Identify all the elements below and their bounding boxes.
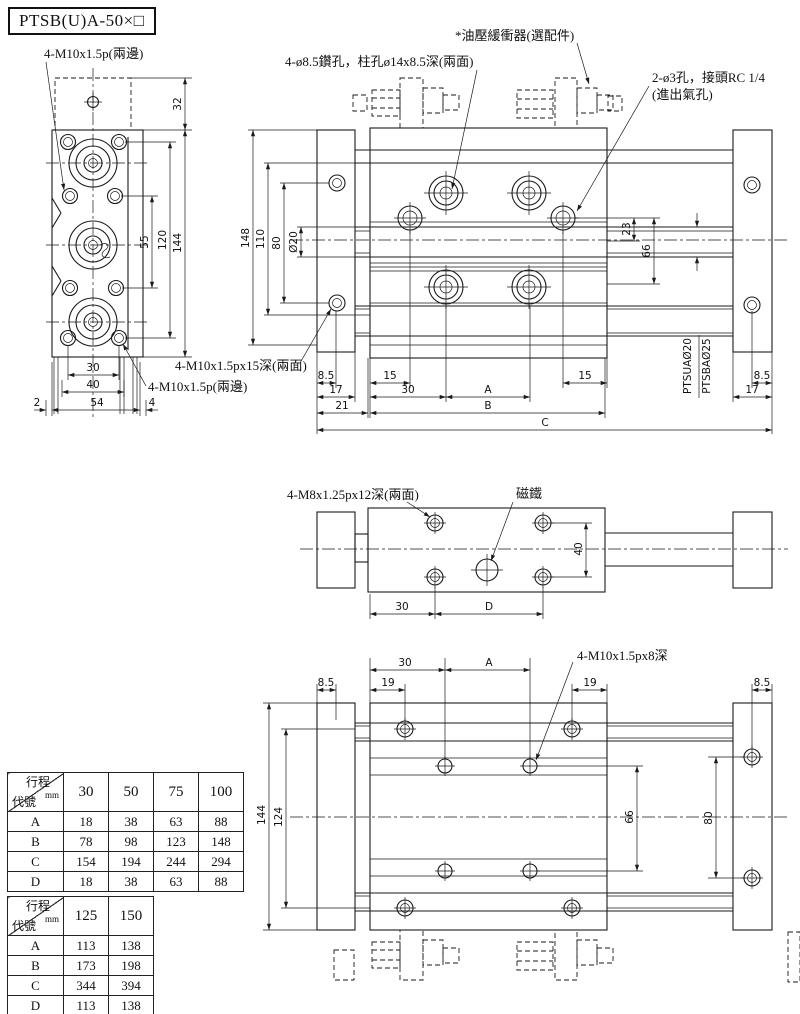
dim-21: 21 (335, 400, 348, 412)
dim-15-right: 15 (578, 370, 591, 382)
dim-dia20: Ø20 (288, 231, 300, 253)
table-cell: 113 (64, 936, 109, 956)
dim-66-bottom: 66 (624, 810, 636, 824)
row-label: B (8, 956, 64, 976)
table-header-row: 行程 mm 代號 30 50 75 100 (8, 773, 244, 812)
dim-144: 144 (172, 233, 184, 253)
table-row: D 113 138 (8, 996, 154, 1014)
table-cell: 154 (64, 852, 109, 872)
stroke-table-2: 行程 mm 代號 125 150 A 113 138 B 173 198 C 3… (7, 896, 154, 1014)
table-row: D 18 38 63 88 (8, 872, 244, 892)
air-port-holes (394, 202, 579, 234)
rod-label-ptsba: PTSBAØ25 (701, 338, 713, 393)
table-cell: 123 (154, 832, 199, 852)
table-row: A 113 138 (8, 936, 154, 956)
header-unit: mm (45, 913, 59, 925)
side-view: 40 30 D 4-M8x1.25px12深(兩面) 磁鐵 (287, 486, 788, 619)
table-col: 100 (199, 773, 244, 812)
dim-8p5-bottom-left: 8.5 (318, 677, 335, 689)
stroke-table-1: 行程 mm 代號 30 50 75 100 A 18 38 63 88 B 78… (7, 772, 244, 892)
row-label: A (8, 936, 64, 956)
shock-absorber-top-right (517, 78, 613, 128)
dim-32: 32 (172, 97, 184, 110)
dim-40: 40 (86, 379, 99, 391)
annotation-port-line1: 2-ø3孔，接頭RC 1/4 (652, 70, 766, 85)
table-cell: 138 (109, 936, 154, 956)
annotation-magnet: 磁鐵 (516, 486, 542, 501)
annotation-tap-m8: 4-M8x1.25px12深(兩面) (287, 487, 419, 502)
table-row: B 78 98 123 148 (8, 832, 244, 852)
dim-8p5-front-left: 8.5 (318, 370, 335, 382)
dim-2: 2 (34, 397, 41, 409)
table-cell: 244 (154, 852, 199, 872)
annotation-tap15: 4-M10x1.5px15深(兩面) (175, 358, 307, 373)
counterbore-holes-front (424, 171, 551, 309)
front-view: 148 110 80 Ø20 23 66 PTSUAØ20 PTSBAØ25 (175, 28, 790, 434)
dim-19-right: 19 (583, 677, 596, 689)
dim-17-front-right: 17 (745, 384, 758, 396)
row-label: B (8, 832, 64, 852)
table-cell: 78 (64, 832, 109, 852)
table-cell: 98 (109, 832, 154, 852)
dim-30-side: 30 (395, 601, 408, 613)
table-cell: 63 (154, 872, 199, 892)
annotation-tap8: 4-M10x1.5px8深 (577, 648, 668, 663)
shock-absorber-bottom-right (517, 930, 613, 980)
table-col: 125 (64, 897, 109, 936)
header-unit: mm (45, 789, 59, 801)
row-label: D (8, 872, 64, 892)
table-cell: 113 (64, 996, 109, 1014)
table-cell: 394 (109, 976, 154, 996)
header-code: 代號 (12, 796, 36, 808)
annotation-thread-top: 4-M10x1.5p(兩邊) (44, 46, 143, 61)
shock-absorber-bottom-left (372, 930, 459, 980)
table-row: A 18 38 63 88 (8, 812, 244, 832)
dim-55: 55 (139, 235, 151, 248)
dim-D-side: D (485, 601, 493, 613)
part-number-title: PTSB(U)A-50×□ (8, 7, 156, 35)
table-col: 30 (64, 773, 109, 812)
dim-17-front-left: 17 (329, 384, 342, 396)
table-cell: 88 (199, 812, 244, 832)
dim-80-bottom: 80 (703, 811, 715, 824)
dim-124: 124 (273, 807, 285, 827)
table-cell: 18 (64, 872, 109, 892)
dim-30-left-view: 30 (86, 362, 99, 374)
table-cell: 148 (199, 832, 244, 852)
part-number-text: PTSB(U)A-50×□ (19, 11, 145, 30)
dim-23: 23 (621, 222, 633, 235)
table-col: 50 (109, 773, 154, 812)
end-plate-holes-bottom (741, 746, 763, 889)
corner-screw-holes-bottom (394, 718, 583, 919)
table-cell: 294 (199, 852, 244, 872)
annotation-drill: 4-ø8.5鑽孔，柱孔ø14x8.5深(兩面) (285, 54, 474, 69)
row-label: D (8, 996, 64, 1014)
bottom-view: 144 124 66 80 30 A 19 19 8.5 8.5 4- (256, 648, 800, 982)
dim-120: 120 (157, 230, 169, 250)
dim-15-left: 15 (383, 370, 396, 382)
rod-label-ptsua: PTSUAØ20 (682, 338, 694, 394)
table-cell: 18 (64, 812, 109, 832)
dim-148: 148 (240, 228, 252, 248)
table-col: 150 (109, 897, 154, 936)
dim-30-front: 30 (401, 384, 414, 396)
dim-30-bottom: 30 (398, 657, 411, 669)
table-cell: 63 (154, 812, 199, 832)
table-cell: 173 (64, 956, 109, 976)
annotation-thread-bottom: 4-M10x1.5p(兩邊) (148, 379, 247, 394)
dim-80-front: 80 (271, 236, 283, 249)
dim-A-front: A (484, 384, 492, 396)
table-cell: 344 (64, 976, 109, 996)
table-cell: 38 (109, 812, 154, 832)
table-cell: 194 (109, 852, 154, 872)
dim-C: C (541, 417, 548, 429)
header-code: 代號 (12, 920, 36, 932)
dim-66-front: 66 (641, 244, 653, 258)
row-label: C (8, 976, 64, 996)
table-cell: 138 (109, 996, 154, 1014)
table-diagonal-header: 行程 mm 代號 (8, 897, 64, 936)
dim-19-left: 19 (381, 677, 394, 689)
table-row: B 173 198 (8, 956, 154, 976)
tapped-holes-side-view (424, 512, 554, 588)
table-cell: 88 (199, 872, 244, 892)
table-row: C 344 394 (8, 976, 154, 996)
annotation-shock: *油壓緩衝器(選配件) (455, 28, 574, 43)
table-cell: 38 (109, 872, 154, 892)
row-label: A (8, 812, 64, 832)
dim-4: 4 (149, 397, 156, 409)
annotation-port-line2: (進出氣孔) (652, 87, 713, 102)
dim-8p5-front-right: 8.5 (754, 370, 771, 382)
dim-144-bottom: 144 (256, 805, 268, 825)
table-header-row: 行程 mm 代號 125 150 (8, 897, 154, 936)
header-stroke: 行程 (26, 900, 50, 912)
table-diagonal-header: 行程 mm 代號 (8, 773, 64, 812)
dim-54: 54 (90, 397, 104, 409)
row-label: C (8, 852, 64, 872)
dim-A-bottom: A (485, 657, 493, 669)
table-col: 75 (154, 773, 199, 812)
dim-8p5-bottom-right: 8.5 (754, 677, 771, 689)
dim-B: B (484, 400, 491, 412)
shock-absorber-top-left (372, 78, 459, 128)
header-stroke: 行程 (26, 776, 50, 788)
table-row: C 154 194 244 294 (8, 852, 244, 872)
end-plate-holes-front (329, 175, 760, 313)
dim-110: 110 (255, 229, 267, 249)
table-cell: 198 (109, 956, 154, 976)
drawing-sheet: PTSB(U)A-50×□ (0, 0, 800, 1014)
magnet-hole (471, 554, 503, 586)
dim-40-side: 40 (573, 542, 585, 555)
